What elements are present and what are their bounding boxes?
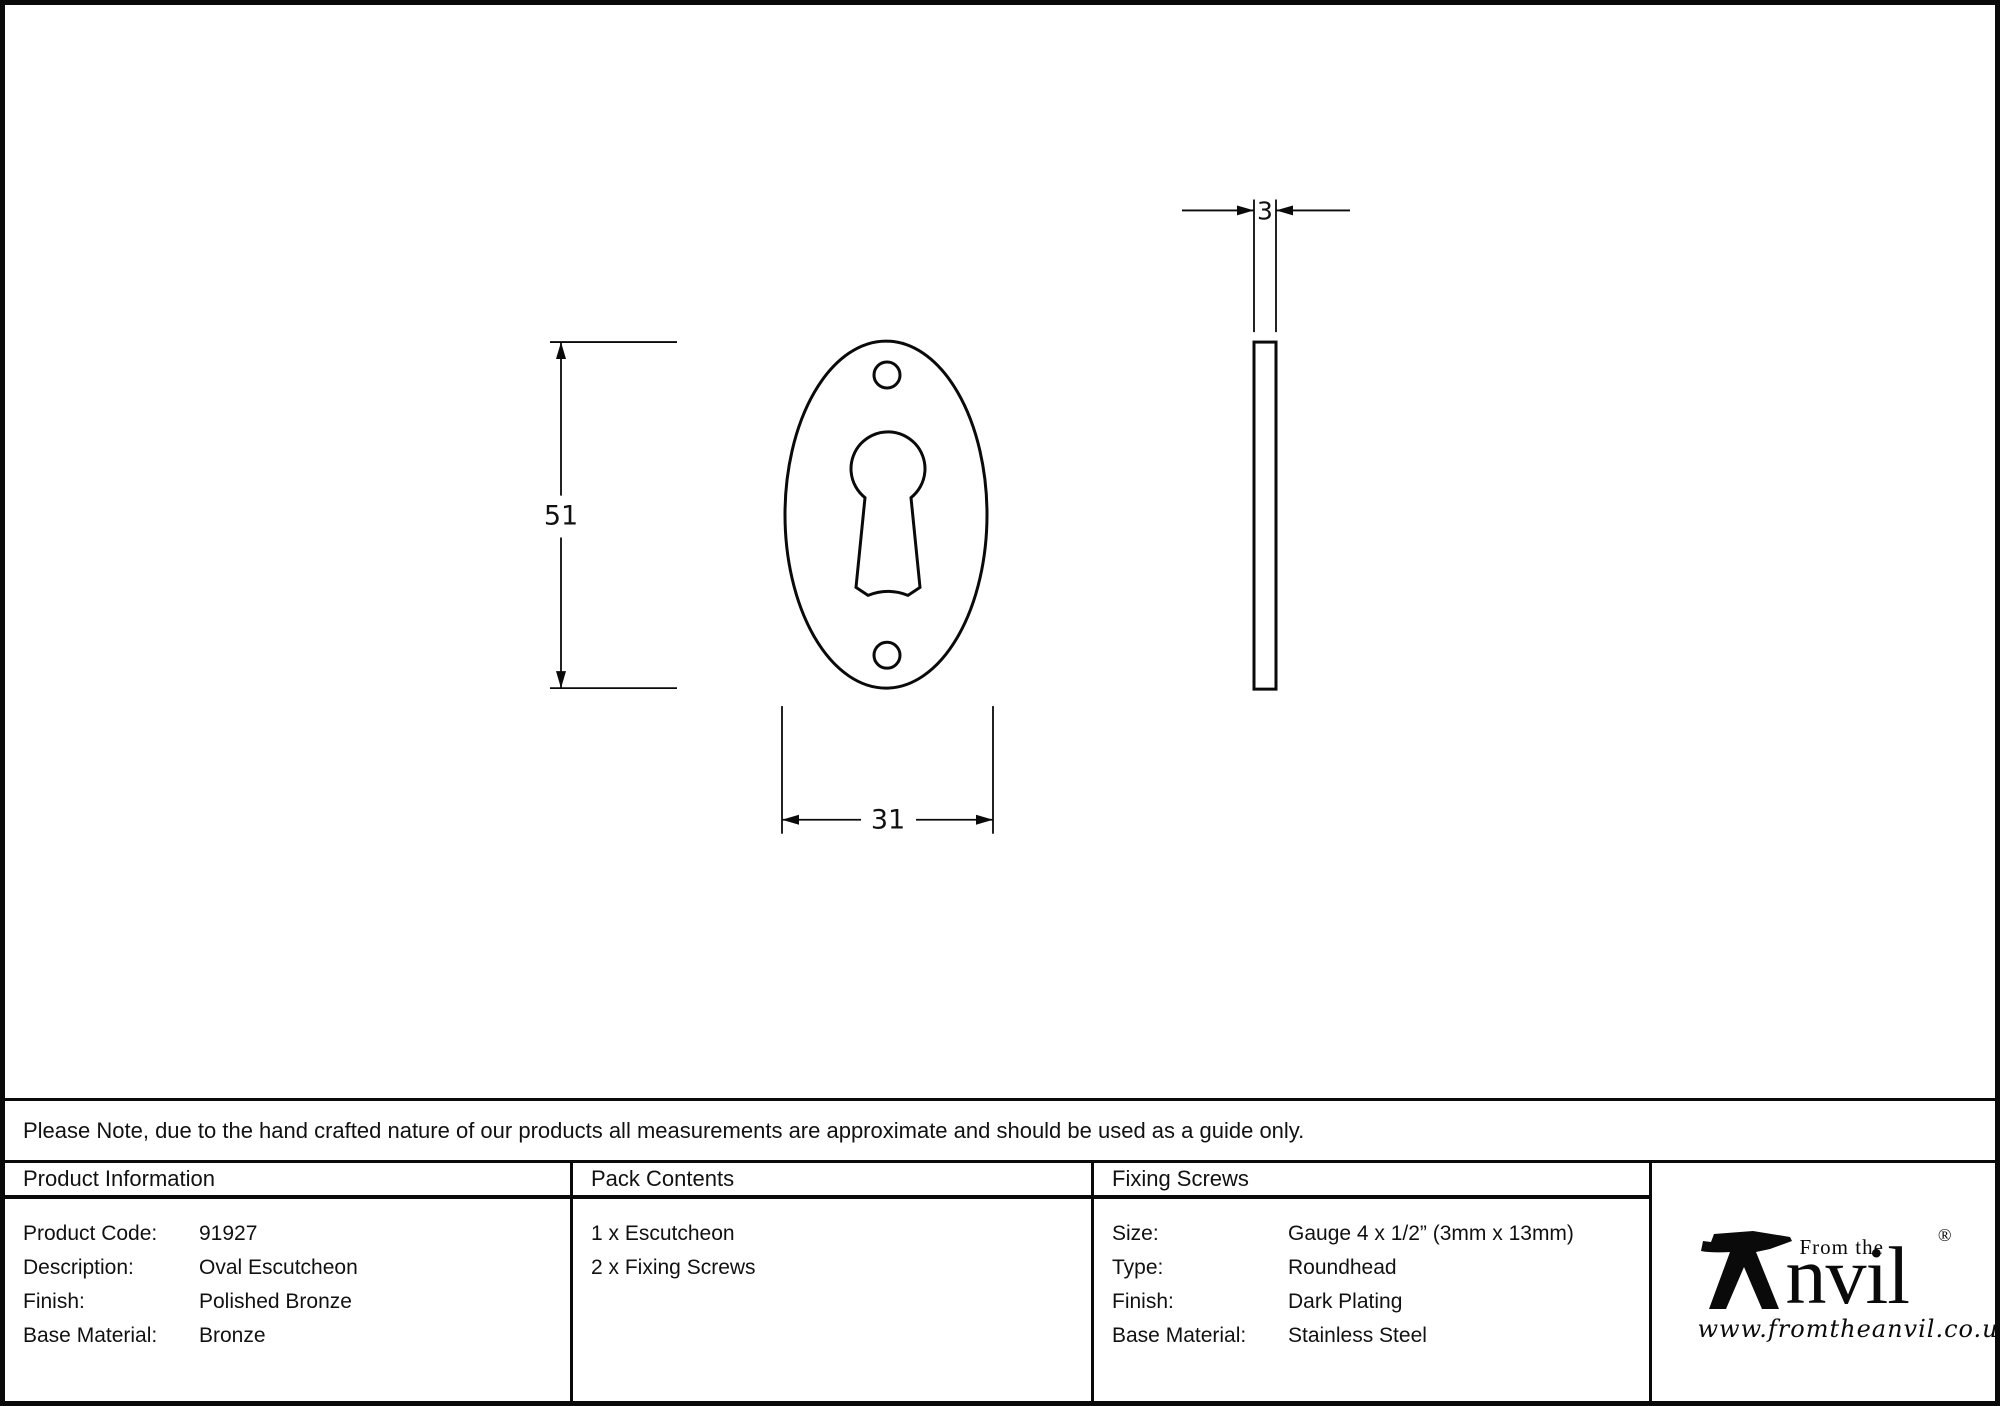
list-item: 2 x Fixing Screws: [591, 1251, 1091, 1285]
arrow-up-icon: [556, 342, 566, 359]
table-row: Product Code: 91927: [23, 1217, 570, 1251]
bottom-screw-hole: [874, 642, 900, 668]
escutcheon-oval: [785, 341, 987, 688]
fixing-screws-header: Fixing Screws: [1094, 1163, 1652, 1199]
info-table: Product Information Pack Contents Fixing…: [5, 1163, 1995, 1401]
table-row: Base Material: Stainless Steel: [1112, 1319, 1649, 1353]
arrow-left-icon: [782, 815, 799, 825]
top-screw-hole: [874, 362, 900, 388]
technical-drawing-area: 51 31 3: [5, 5, 1995, 1101]
product-information-header: Product Information: [5, 1163, 573, 1199]
pack-contents-body: 1 x Escutcheon 2 x Fixing Screws: [573, 1199, 1094, 1401]
fixing-screws-body: Size: Gauge 4 x 1/2” (3mm x 13mm) Type: …: [1094, 1199, 1652, 1401]
product-spec-sheet: 51 31 3 Please No: [0, 0, 2000, 1406]
arrow-down-icon: [556, 671, 566, 688]
pack-contents-header: Pack Contents: [573, 1163, 1094, 1199]
table-row: Base Material: Bronze: [23, 1319, 570, 1353]
table-row: Description: Oval Escutcheon: [23, 1251, 570, 1285]
table-row: Finish: Polished Bronze: [23, 1285, 570, 1319]
list-item: 1 x Escutcheon: [591, 1217, 1091, 1251]
height-dim-label: 51: [544, 501, 578, 532]
thickness-dim-label: 3: [1257, 196, 1273, 225]
keyhole: [851, 432, 925, 596]
width-dim-label: 31: [871, 805, 905, 836]
anvil-icon: [1698, 1229, 1794, 1311]
note-text: Please Note, due to the hand crafted nat…: [23, 1118, 1304, 1144]
side-profile-rect: [1254, 342, 1276, 689]
table-row: Type: Roundhead: [1112, 1251, 1649, 1285]
product-information-body: Product Code: 91927 Description: Oval Es…: [5, 1199, 573, 1401]
registered-trademark-icon: ®: [1938, 1225, 1952, 1246]
logo-website-url: www.fromtheanvil.co.uk: [1698, 1315, 1950, 1343]
table-row: Finish: Dark Plating: [1112, 1285, 1649, 1319]
note-bar: Please Note, due to the hand crafted nat…: [5, 1101, 1995, 1163]
logo-brand-text: nvil: [1786, 1237, 1910, 1315]
arrow-right-icon: [976, 815, 993, 825]
table-row: Size: Gauge 4 x 1/2” (3mm x 13mm): [1112, 1217, 1649, 1251]
side-view-outline: [1254, 342, 1276, 689]
arrow-right-icon: [1237, 205, 1254, 215]
anvil-logo: From the nvil ® www.fromtheanvil.co.uk: [1698, 1223, 1950, 1341]
arrow-left-icon: [1276, 205, 1293, 215]
front-view-outline: [785, 341, 987, 688]
escutcheon-drawing: 51 31 3: [5, 5, 1995, 1098]
brand-logo-cell: From the nvil ® www.fromtheanvil.co.uk: [1652, 1163, 1995, 1401]
